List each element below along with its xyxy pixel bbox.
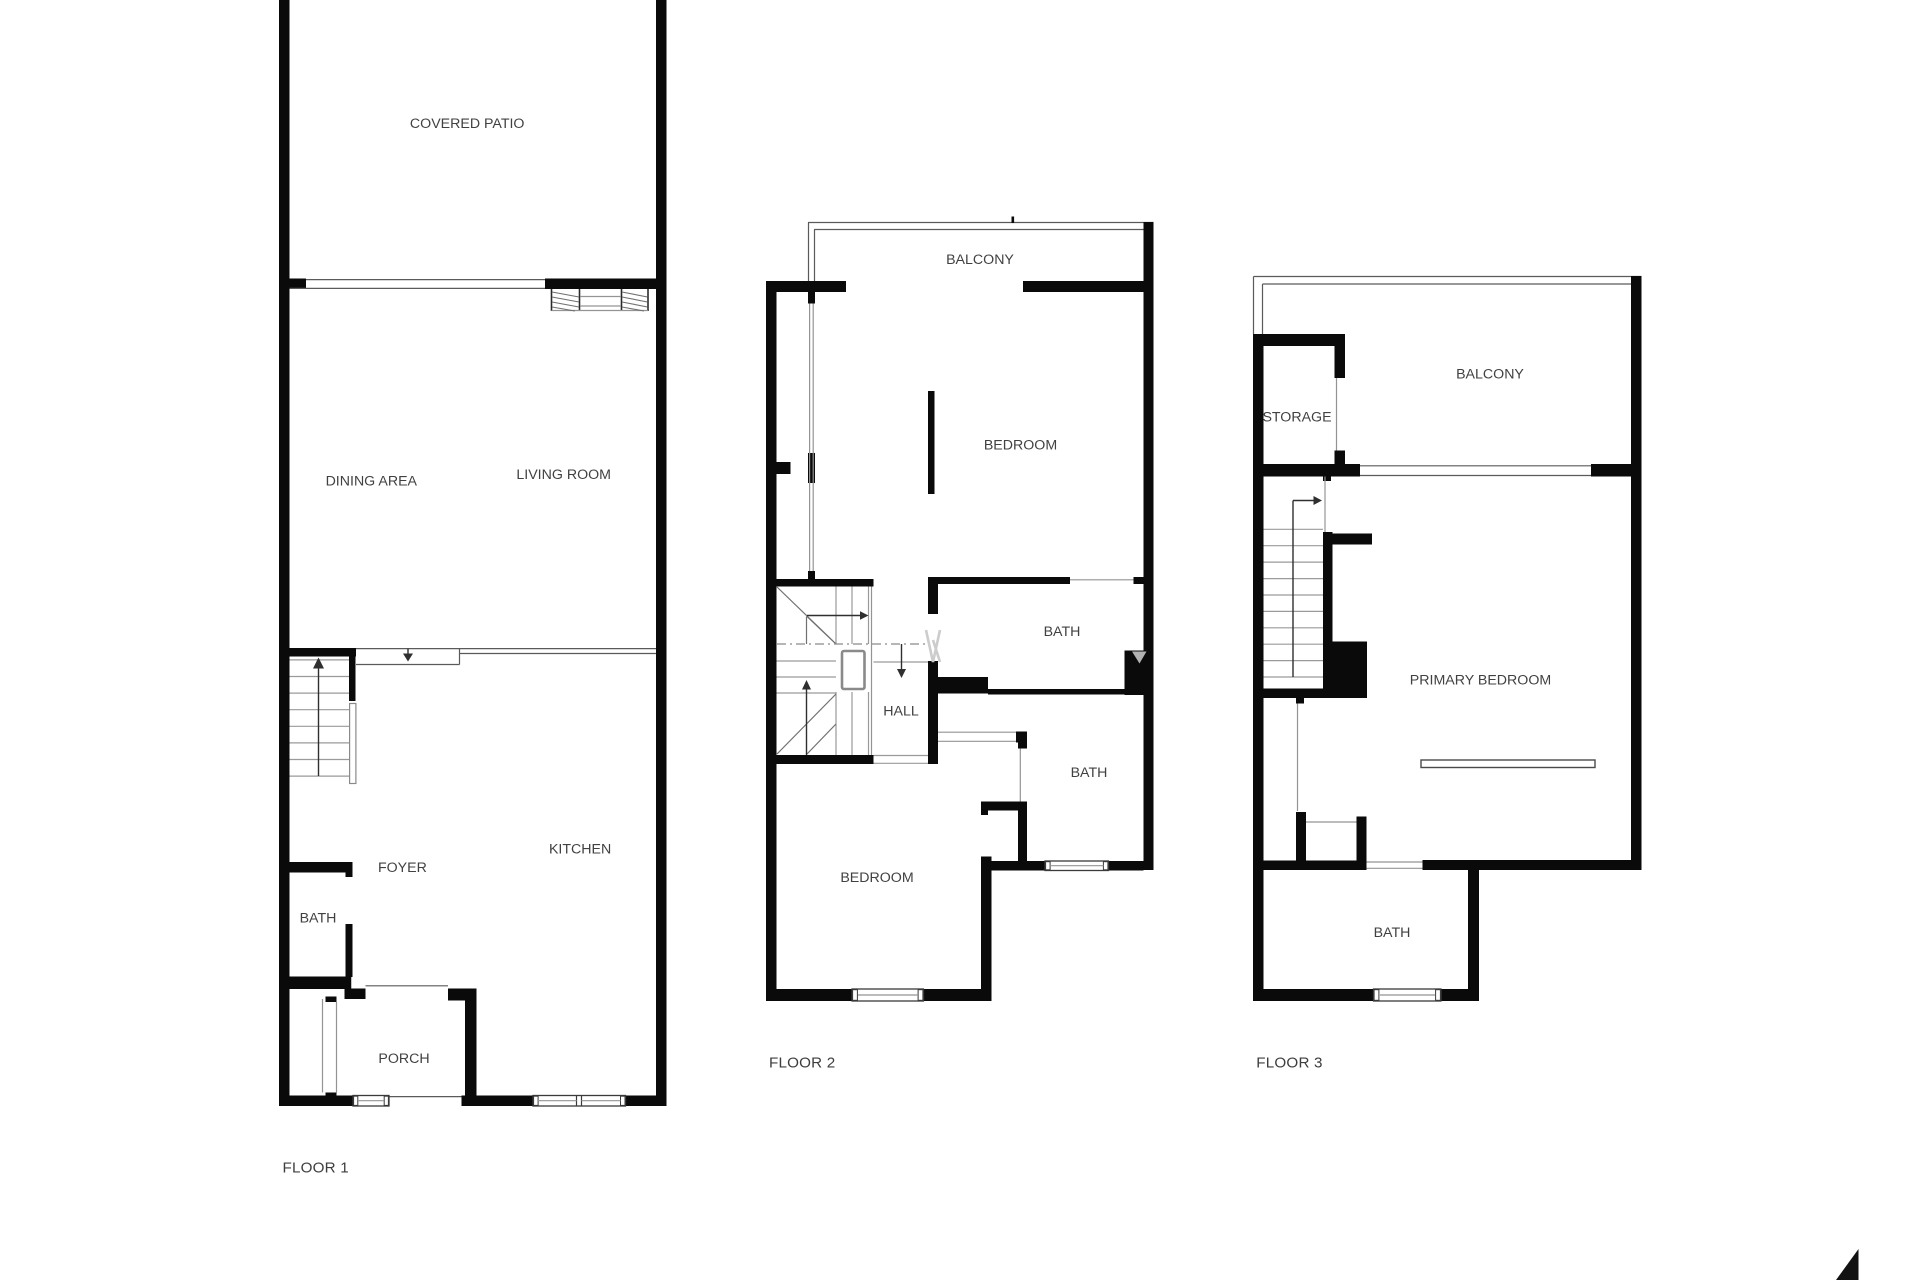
svg-text:FLOOR 2: FLOOR 2 [769,1055,835,1072]
svg-text:STORAGE: STORAGE [1262,410,1331,426]
svg-text:BATH: BATH [1071,765,1108,781]
svg-text:HALL: HALL [883,703,919,719]
svg-text:FLOOR 1: FLOOR 1 [283,1160,349,1177]
svg-text:BATH: BATH [1044,624,1081,640]
svg-text:BEDROOM: BEDROOM [984,437,1057,453]
svg-text:COVERED PATIO: COVERED PATIO [410,116,525,132]
svg-text:KITCHEN: KITCHEN [549,842,611,858]
svg-text:PORCH: PORCH [378,1051,429,1067]
svg-text:BALCONY: BALCONY [946,252,1014,268]
svg-text:BALCONY: BALCONY [1456,367,1524,383]
svg-text:BATH: BATH [300,910,337,926]
svg-text:BATH: BATH [1374,925,1411,941]
svg-text:FOYER: FOYER [378,860,427,876]
svg-text:LIVING ROOM: LIVING ROOM [516,467,611,483]
svg-text:DINING AREA: DINING AREA [326,474,418,490]
svg-text:BEDROOM: BEDROOM [840,870,913,886]
svg-text:FLOOR 3: FLOOR 3 [1256,1055,1322,1072]
svg-text:PRIMARY BEDROOM: PRIMARY BEDROOM [1410,673,1551,689]
